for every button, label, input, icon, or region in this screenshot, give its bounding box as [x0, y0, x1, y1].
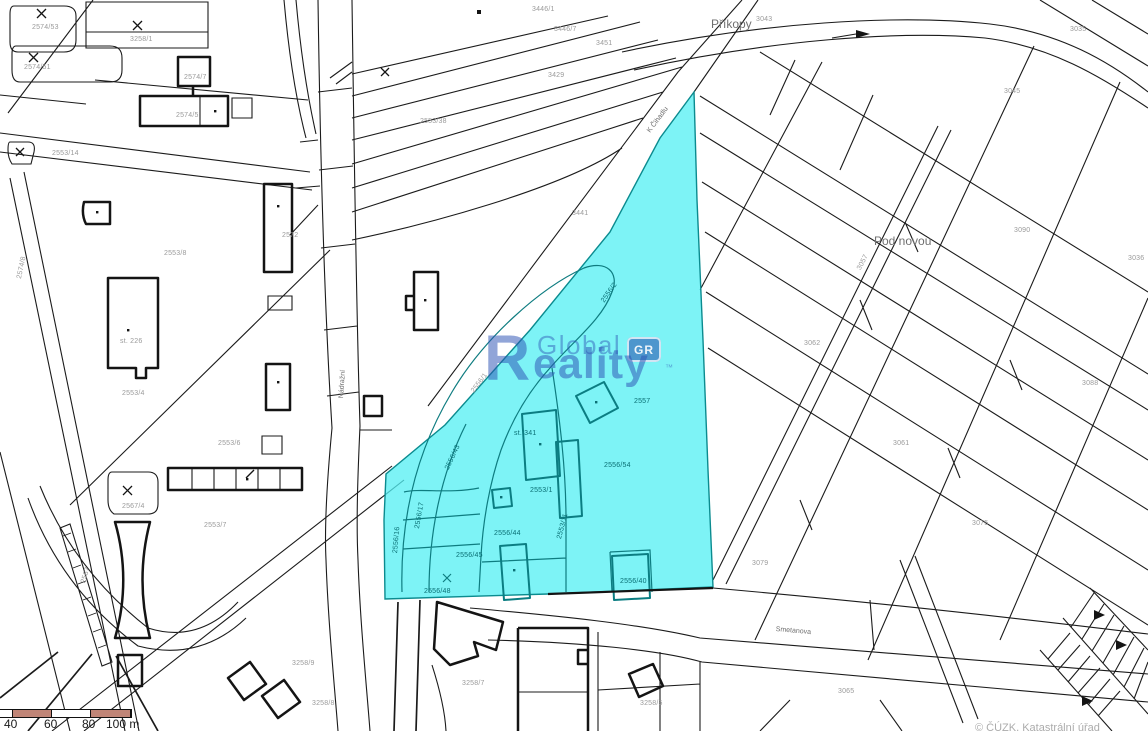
- parcel-label: 2553/4: [122, 390, 145, 397]
- parcel-label: 3451: [596, 40, 612, 47]
- parcel-label: 3429: [548, 72, 564, 79]
- parcel-label: 2553/38: [420, 118, 447, 125]
- parcel-label: 3258/5: [640, 700, 663, 707]
- parcel-label: 3061: [893, 440, 909, 447]
- scale-bar-segment: [52, 710, 91, 717]
- parcel-label-highlight: 2556/40: [620, 578, 647, 585]
- street-label: Pod novou: [874, 234, 931, 248]
- parcel-label-highlight: 2556/44: [494, 530, 521, 537]
- attribution-text: © ČÚZK, Katastrální úřad: [975, 722, 1100, 731]
- scale-tick-label: 60: [44, 717, 57, 731]
- parcel-label-highlight: st. 341: [514, 430, 536, 437]
- parcel-label: 2574/7: [184, 74, 207, 81]
- parcel-label-highlight: 2556/45: [456, 552, 483, 559]
- parcel-label: 3258/9: [292, 660, 315, 667]
- parcel-label: 2574/51: [24, 64, 51, 71]
- scale-bar-segment: [91, 710, 131, 717]
- parcel-label: 3043: [756, 16, 772, 23]
- parcel-label: 2572: [282, 232, 298, 239]
- parcel-label: 3079: [752, 560, 768, 567]
- parcel-label: 3258/8: [312, 700, 335, 707]
- parcel-label: 2574/5: [176, 112, 199, 119]
- parcel-label-highlight: 2553/1: [530, 487, 553, 494]
- parcel-label-highlight: 2556/54: [604, 462, 631, 469]
- scale-bar-segment: [13, 710, 52, 717]
- scale-tick-label: 40: [4, 717, 17, 731]
- parcel-label: 2567/4: [122, 503, 145, 510]
- parcel-label: 3258/7: [462, 680, 485, 687]
- cadastral-linework: [0, 0, 1148, 731]
- parcel-label: 3446/1: [532, 6, 555, 13]
- parcel-label: 3088: [1082, 380, 1098, 387]
- highlighted-parcel[interactable]: [384, 92, 713, 599]
- parcel-label: 3062: [804, 340, 820, 347]
- parcel-label: 2574/53: [32, 24, 59, 31]
- parcel-label-highlight: 2556/48: [424, 588, 451, 595]
- street-label: Příkopy: [711, 17, 752, 31]
- parcel-label: 3036: [1128, 255, 1144, 262]
- parcel-label: 2553/8: [164, 250, 187, 257]
- parcel-label: 3065: [838, 688, 854, 695]
- parcel-label: 3045: [1004, 88, 1020, 95]
- parcel-label: 3090: [1014, 227, 1030, 234]
- scale-tick-label: 80: [82, 717, 95, 731]
- parcel-label: 3035: [1070, 26, 1086, 33]
- parcel-label: 3075: [972, 520, 988, 527]
- parcel-label-highlight: 2557: [634, 398, 650, 405]
- parcel-label: 3446/7: [554, 26, 577, 33]
- scale-bar-segment: [0, 710, 13, 717]
- cadastral-map-image[interactable]: 2574/532574/513258/12574/72574/52553/142…: [0, 0, 1148, 731]
- parcel-label: 2553/7: [204, 522, 227, 529]
- parcel-label: 2553/14: [52, 150, 79, 157]
- scale-tick-label: 100 m: [106, 717, 139, 731]
- parcel-label: 2553/6: [218, 440, 241, 447]
- hatched-strip: [63, 533, 106, 648]
- parcel-label: st. 226: [120, 338, 142, 345]
- parcel-label: 3441: [572, 210, 588, 217]
- parcel-label: 3258/1: [130, 36, 153, 43]
